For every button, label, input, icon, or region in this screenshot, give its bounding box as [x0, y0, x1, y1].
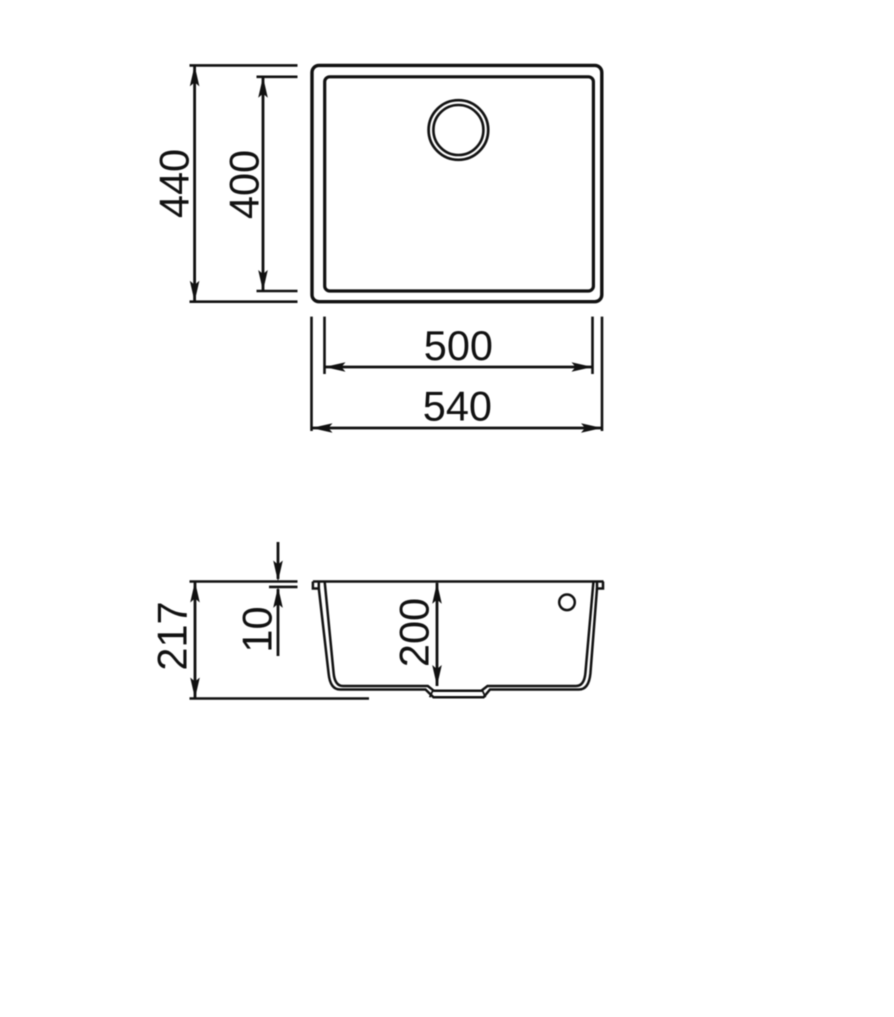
svg-text:540: 540	[423, 383, 492, 430]
svg-text:217: 217	[149, 601, 196, 670]
svg-text:440: 440	[151, 149, 198, 218]
svg-text:500: 500	[424, 322, 493, 369]
svg-text:200: 200	[391, 598, 438, 667]
svg-text:400: 400	[221, 150, 268, 219]
svg-text:10: 10	[234, 606, 281, 652]
